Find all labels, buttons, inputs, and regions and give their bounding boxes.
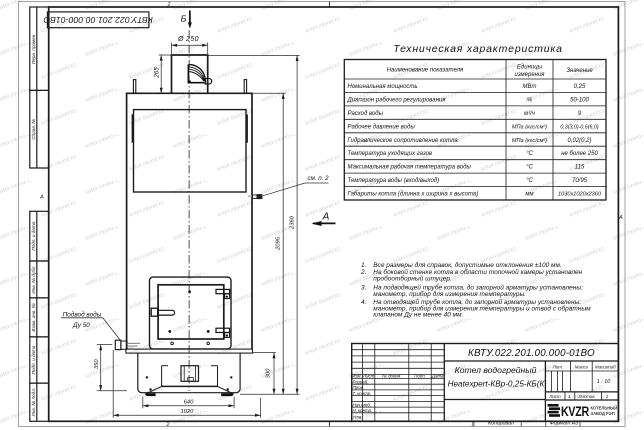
svg-text:Гидравлическое сопротивление к: Гидравлическое сопротивление котла	[348, 138, 459, 144]
svg-text:Подвод воды: Подвод воды	[63, 310, 102, 318]
svg-text:0,02(0,2): 0,02(0,2)	[567, 138, 591, 144]
svg-text:KVZR: KVZR	[561, 404, 589, 420]
svg-text:мм: мм	[525, 192, 533, 198]
svg-text:см. п. 2: см. п. 2	[307, 175, 329, 182]
svg-text:Дата: Дата	[431, 374, 444, 379]
svg-text:измерения: измерения	[514, 72, 545, 78]
svg-text:Единицы: Единицы	[517, 65, 543, 71]
svg-text:Максимальная рабочая температу: Максимальная рабочая температура воды	[348, 165, 472, 171]
svg-text:300: 300	[266, 368, 272, 378]
svg-text:0,25: 0,25	[574, 84, 586, 90]
svg-text:50-100: 50-100	[570, 97, 589, 103]
svg-text:Масштаб: Масштаб	[595, 365, 616, 370]
svg-text:2.: 2.	[360, 269, 367, 276]
svg-text:А: А	[618, 215, 623, 221]
svg-text:Копировал: Копировал	[488, 421, 514, 427]
svg-text:Подп.: Подп.	[414, 374, 426, 379]
svg-text:640: 640	[184, 400, 194, 406]
svg-text:1030х1020х2360: 1030х1020х2360	[558, 192, 602, 198]
svg-text:3.: 3.	[361, 284, 367, 291]
svg-text:Расход воды: Расход воды	[348, 111, 384, 117]
svg-text:А: А	[322, 212, 330, 223]
svg-text:Инв. № подл.: Инв. № подл.	[31, 388, 36, 417]
svg-text:Перв. примен.: Перв. примен.	[31, 33, 36, 64]
svg-text:°С: °С	[526, 165, 533, 171]
svg-text:Ду 50: Ду 50	[72, 322, 90, 329]
svg-text:м³/ч: м³/ч	[524, 111, 535, 117]
svg-text:№ докум.: № докум.	[382, 374, 401, 379]
svg-text:Лист: Лист	[362, 374, 375, 379]
svg-text:Значение: Значение	[566, 68, 593, 74]
svg-text:Пров.: Пров.	[353, 385, 365, 390]
svg-text:Диапазон рабочего регулировани: Диапазон рабочего регулирования	[347, 97, 447, 103]
svg-text:Подп. и дата: Подп. и дата	[31, 221, 36, 250]
svg-text:Инв. № дубл.: Инв. № дубл.	[31, 265, 36, 293]
svg-text:не более 250: не более 250	[561, 151, 598, 157]
svg-text:Подп. и дата: Подп. и дата	[31, 345, 36, 374]
svg-text:Техническая характеристика: Техническая характеристика	[393, 43, 562, 55]
svg-text:Нач.отд.: Нач.отд.	[353, 402, 372, 407]
svg-text:°С: °С	[526, 178, 533, 184]
svg-text:Ø 250: Ø 250	[177, 36, 199, 43]
svg-text:115: 115	[575, 165, 585, 171]
svg-text:Лист: Лист	[548, 394, 561, 399]
svg-text:пробоотборный штуцер.: пробоотборный штуцер.	[373, 274, 452, 282]
svg-text:манометр, прибор для измерения: манометр, прибор для измерения температу…	[373, 290, 526, 298]
svg-text:350: 350	[94, 359, 100, 369]
svg-text:265: 265	[154, 67, 161, 79]
svg-text:Т. контр.: Т. контр.	[353, 391, 372, 396]
svg-text:2095: 2095	[276, 236, 282, 251]
svg-text:2360: 2360	[289, 215, 295, 230]
svg-text:ЗАВОД РЭП: ЗАВОД РЭП	[591, 411, 615, 416]
svg-text:Все размеры для справок, допус: Все размеры для справок, допустимые откл…	[373, 261, 562, 269]
svg-text:Температура воды (вход/выход): Температура воды (вход/выход)	[348, 178, 440, 184]
svg-text:Утв.: Утв.	[353, 415, 363, 420]
svg-text:Разраб.: Разраб.	[353, 379, 369, 384]
svg-text:КВТУ.022.201.00.000-01ВО: КВТУ.022.201.00.000-01ВО	[468, 348, 595, 359]
svg-text:Рабочее давление воды: Рабочее давление воды	[348, 124, 416, 130]
svg-text:70/95: 70/95	[572, 178, 588, 184]
svg-text:2: 2	[166, 422, 170, 428]
svg-text:1020: 1020	[180, 409, 194, 415]
svg-text:2: 2	[167, 2, 171, 8]
svg-text:0,3(3,0)-0,6(6,0): 0,3(3,0)-0,6(6,0)	[560, 124, 599, 130]
svg-text:Лит.: Лит.	[552, 365, 563, 370]
svg-text:Масса: Масса	[575, 365, 589, 370]
svg-text:Н. контр.: Н. контр.	[353, 408, 373, 413]
svg-text:А: А	[39, 195, 44, 201]
svg-text:КВТУ.022.201.00.000-01ВО: КВТУ.022.201.00.000-01ВО	[43, 15, 153, 25]
svg-text:%: %	[527, 97, 533, 103]
svg-text:Котел водогрейный: Котел водогрейный	[455, 365, 537, 375]
svg-text:Номинальная мощность: Номинальная мощность	[348, 84, 418, 90]
svg-text:КОТЕЛЬНЫЙ: КОТЕЛЬНЫЙ	[591, 406, 618, 411]
svg-text:Листов: Листов	[578, 394, 596, 399]
svg-text:Формат А3: Формат А3	[550, 421, 578, 427]
svg-text:Наименование показателя: Наименование показателя	[387, 68, 464, 74]
svg-text:4.: 4.	[361, 299, 367, 306]
svg-text:Взам. инв. №: Взам. инв. №	[31, 303, 36, 331]
svg-text:МПа (кгс/см²): МПа (кгс/см²)	[512, 138, 547, 144]
svg-text:1.: 1.	[361, 262, 367, 269]
svg-text:Heatexpert-КВр-0,25-КБ(К: Heatexpert-КВр-0,25-КБ(К	[448, 379, 546, 388]
svg-text:МПа (кгс/см²): МПа (кгс/см²)	[512, 124, 547, 130]
svg-text:Б: Б	[181, 13, 187, 23]
svg-text:Габариты котла (длинна х ширин: Габариты котла (длинна х ширина х высота…	[348, 192, 479, 198]
svg-text:Изм.: Изм.	[352, 374, 361, 379]
svg-text:2: 2	[605, 394, 609, 399]
svg-text:МВт: МВт	[523, 84, 537, 90]
svg-text:°С: °С	[526, 151, 533, 157]
svg-text:Справ. №: Справ. №	[31, 119, 36, 140]
svg-text:1 : 10: 1 : 10	[597, 379, 611, 385]
svg-text:Температура уходящих газов: Температура уходящих газов	[348, 151, 433, 157]
svg-text:клапаном Ду не менее 40 мм.: клапаном Ду не менее 40 мм.	[373, 312, 463, 319]
